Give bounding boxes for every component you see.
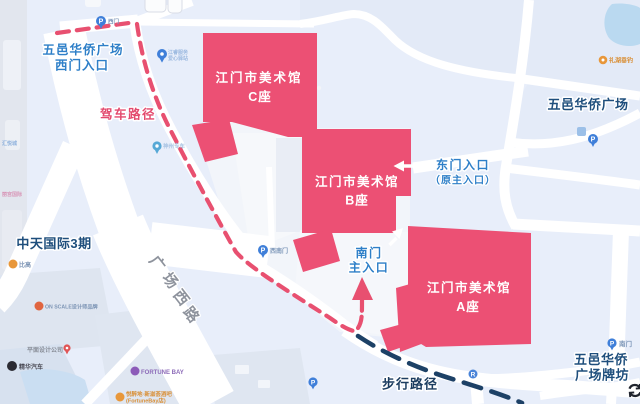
svg-text:江门市美术馆: 江门市美术馆: [215, 70, 302, 85]
svg-text:P: P: [99, 19, 104, 26]
svg-text:R: R: [471, 371, 476, 378]
svg-text:广场牌坊: 广场牌坊: [575, 368, 629, 383]
svg-text:ON SCALE设计师品牌: ON SCALE设计师品牌: [45, 303, 99, 311]
svg-text:驾车路径: 驾车路径: [100, 107, 156, 122]
svg-text:P: P: [261, 248, 266, 255]
svg-text:(FortuneBay店): (FortuneBay店): [126, 397, 166, 404]
svg-text:悦醉地·新滋荟酒吧: 悦醉地·新滋荟酒吧: [126, 390, 172, 398]
svg-text:西门入口: 西门入口: [55, 58, 109, 73]
svg-text:丽宫国际: 丽宫国际: [2, 191, 22, 198]
svg-text:比高: 比高: [19, 261, 31, 269]
svg-text:东门入口: 东门入口: [436, 157, 490, 172]
svg-text:A座: A座: [456, 299, 480, 314]
svg-text:江睿服务: 江睿服务: [168, 49, 189, 56]
svg-text:南门: 南门: [619, 339, 633, 348]
svg-text:江门市美术馆: 江门市美术馆: [427, 280, 511, 295]
svg-text:江门市美术馆: 江门市美术馆: [315, 174, 399, 189]
svg-text:B座: B座: [345, 193, 369, 208]
svg-text:礼湖垂钓: 礼湖垂钓: [609, 57, 633, 65]
svg-text:（原主入口）: （原主入口）: [430, 174, 496, 187]
svg-text:P: P: [610, 340, 615, 347]
svg-text:中天国际3期: 中天国际3期: [16, 236, 91, 251]
svg-text:西南门: 西南门: [270, 247, 288, 255]
svg-text:P: P: [311, 379, 316, 386]
svg-text:P: P: [591, 137, 596, 144]
svg-text:C座: C座: [248, 89, 272, 104]
svg-text:五邑华侨广场: 五邑华侨广场: [42, 42, 123, 57]
svg-text:爱心驿站: 爱心驿站: [168, 55, 188, 62]
svg-text:主入口: 主入口: [349, 260, 390, 275]
svg-text:五邑华侨广场: 五邑华侨广场: [547, 97, 628, 112]
svg-text:汇悦城: 汇悦城: [2, 140, 17, 147]
svg-text:神州专车: 神州专车: [163, 142, 186, 150]
svg-text:西门: 西门: [108, 18, 120, 26]
svg-text:FORTUNE BAY: FORTUNE BAY: [141, 370, 184, 376]
svg-text:五邑华侨: 五邑华侨: [574, 352, 629, 367]
svg-text:南门: 南门: [355, 245, 382, 260]
svg-text:平面设计公司: 平面设计公司: [27, 346, 63, 354]
svg-text:精华汽车: 精华汽车: [19, 363, 43, 371]
svg-text:步行路径: 步行路径: [382, 377, 438, 392]
